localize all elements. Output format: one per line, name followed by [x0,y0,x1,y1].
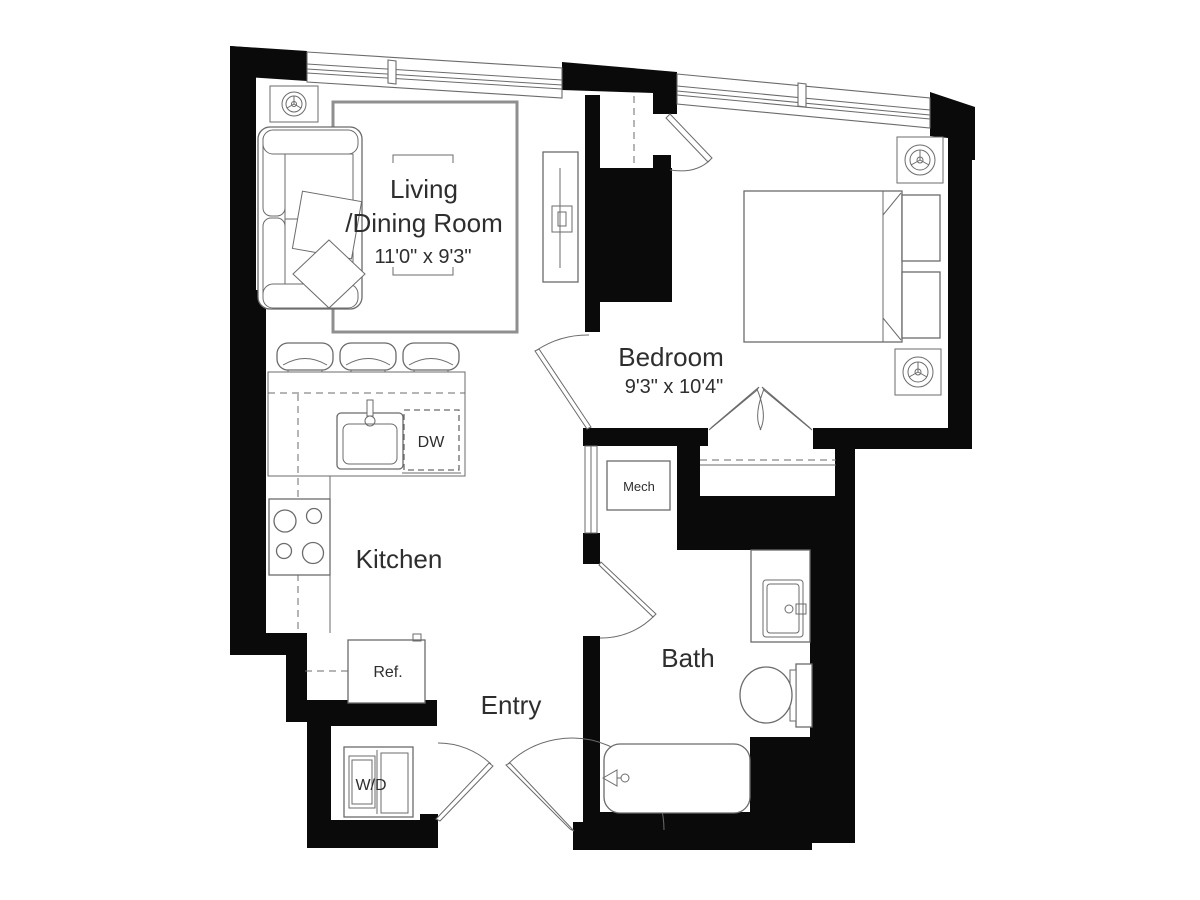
bedroom-dimensions: 9'3" x 10'4" [625,376,724,398]
nightstand [902,195,940,261]
mech-closet: Mech [585,446,670,533]
door-swing-bedroom-top [666,114,712,171]
bath-label: Bath [661,643,715,673]
living-room-label-2: /Dining Room [345,208,503,238]
sprinkler-icon [897,137,943,183]
bedroom-label: Bedroom [618,342,724,372]
mech-label: Mech [623,479,655,494]
window-living [307,52,562,98]
door-swing-bedroom [535,335,591,429]
sprinkler-icon [270,86,318,122]
stove [269,499,330,575]
bed [744,191,902,342]
door-swing-wd-closet [436,743,493,821]
living-room-label: Living [390,174,458,204]
washer-dryer-label: W/D [355,777,386,794]
tv-console [543,152,578,282]
refrigerator-label: Ref. [373,664,402,681]
bar-stool [403,343,459,374]
refrigerator: Ref. [305,634,425,703]
bathtub [603,744,750,813]
bar-stool [277,343,333,374]
dishwasher-label: DW [418,434,446,451]
bar-stool [340,343,396,374]
entry-label: Entry [481,690,542,720]
vanity-sink [751,550,810,642]
kitchen-label: Kitchen [356,544,443,574]
sprinkler-icon [895,349,941,395]
toilet [740,664,812,727]
closet-shelf [700,460,836,465]
living-room-dimensions: 11'0" x 9'3" [374,246,471,268]
living-dining-room: Living /Dining Room 11'0" x 9'3" [258,86,578,332]
closet-double-doors [709,387,812,430]
window-bedroom [677,74,930,128]
nightstand [902,272,940,338]
floor-plan-drawing: Living /Dining Room 11'0" x 9'3" [0,0,1200,900]
floor-plan: Living /Dining Room 11'0" x 9'3" [0,0,1200,900]
dishwasher: DW [402,410,461,473]
washer-dryer: W/D [344,747,413,817]
door-swing-bath [599,562,656,638]
